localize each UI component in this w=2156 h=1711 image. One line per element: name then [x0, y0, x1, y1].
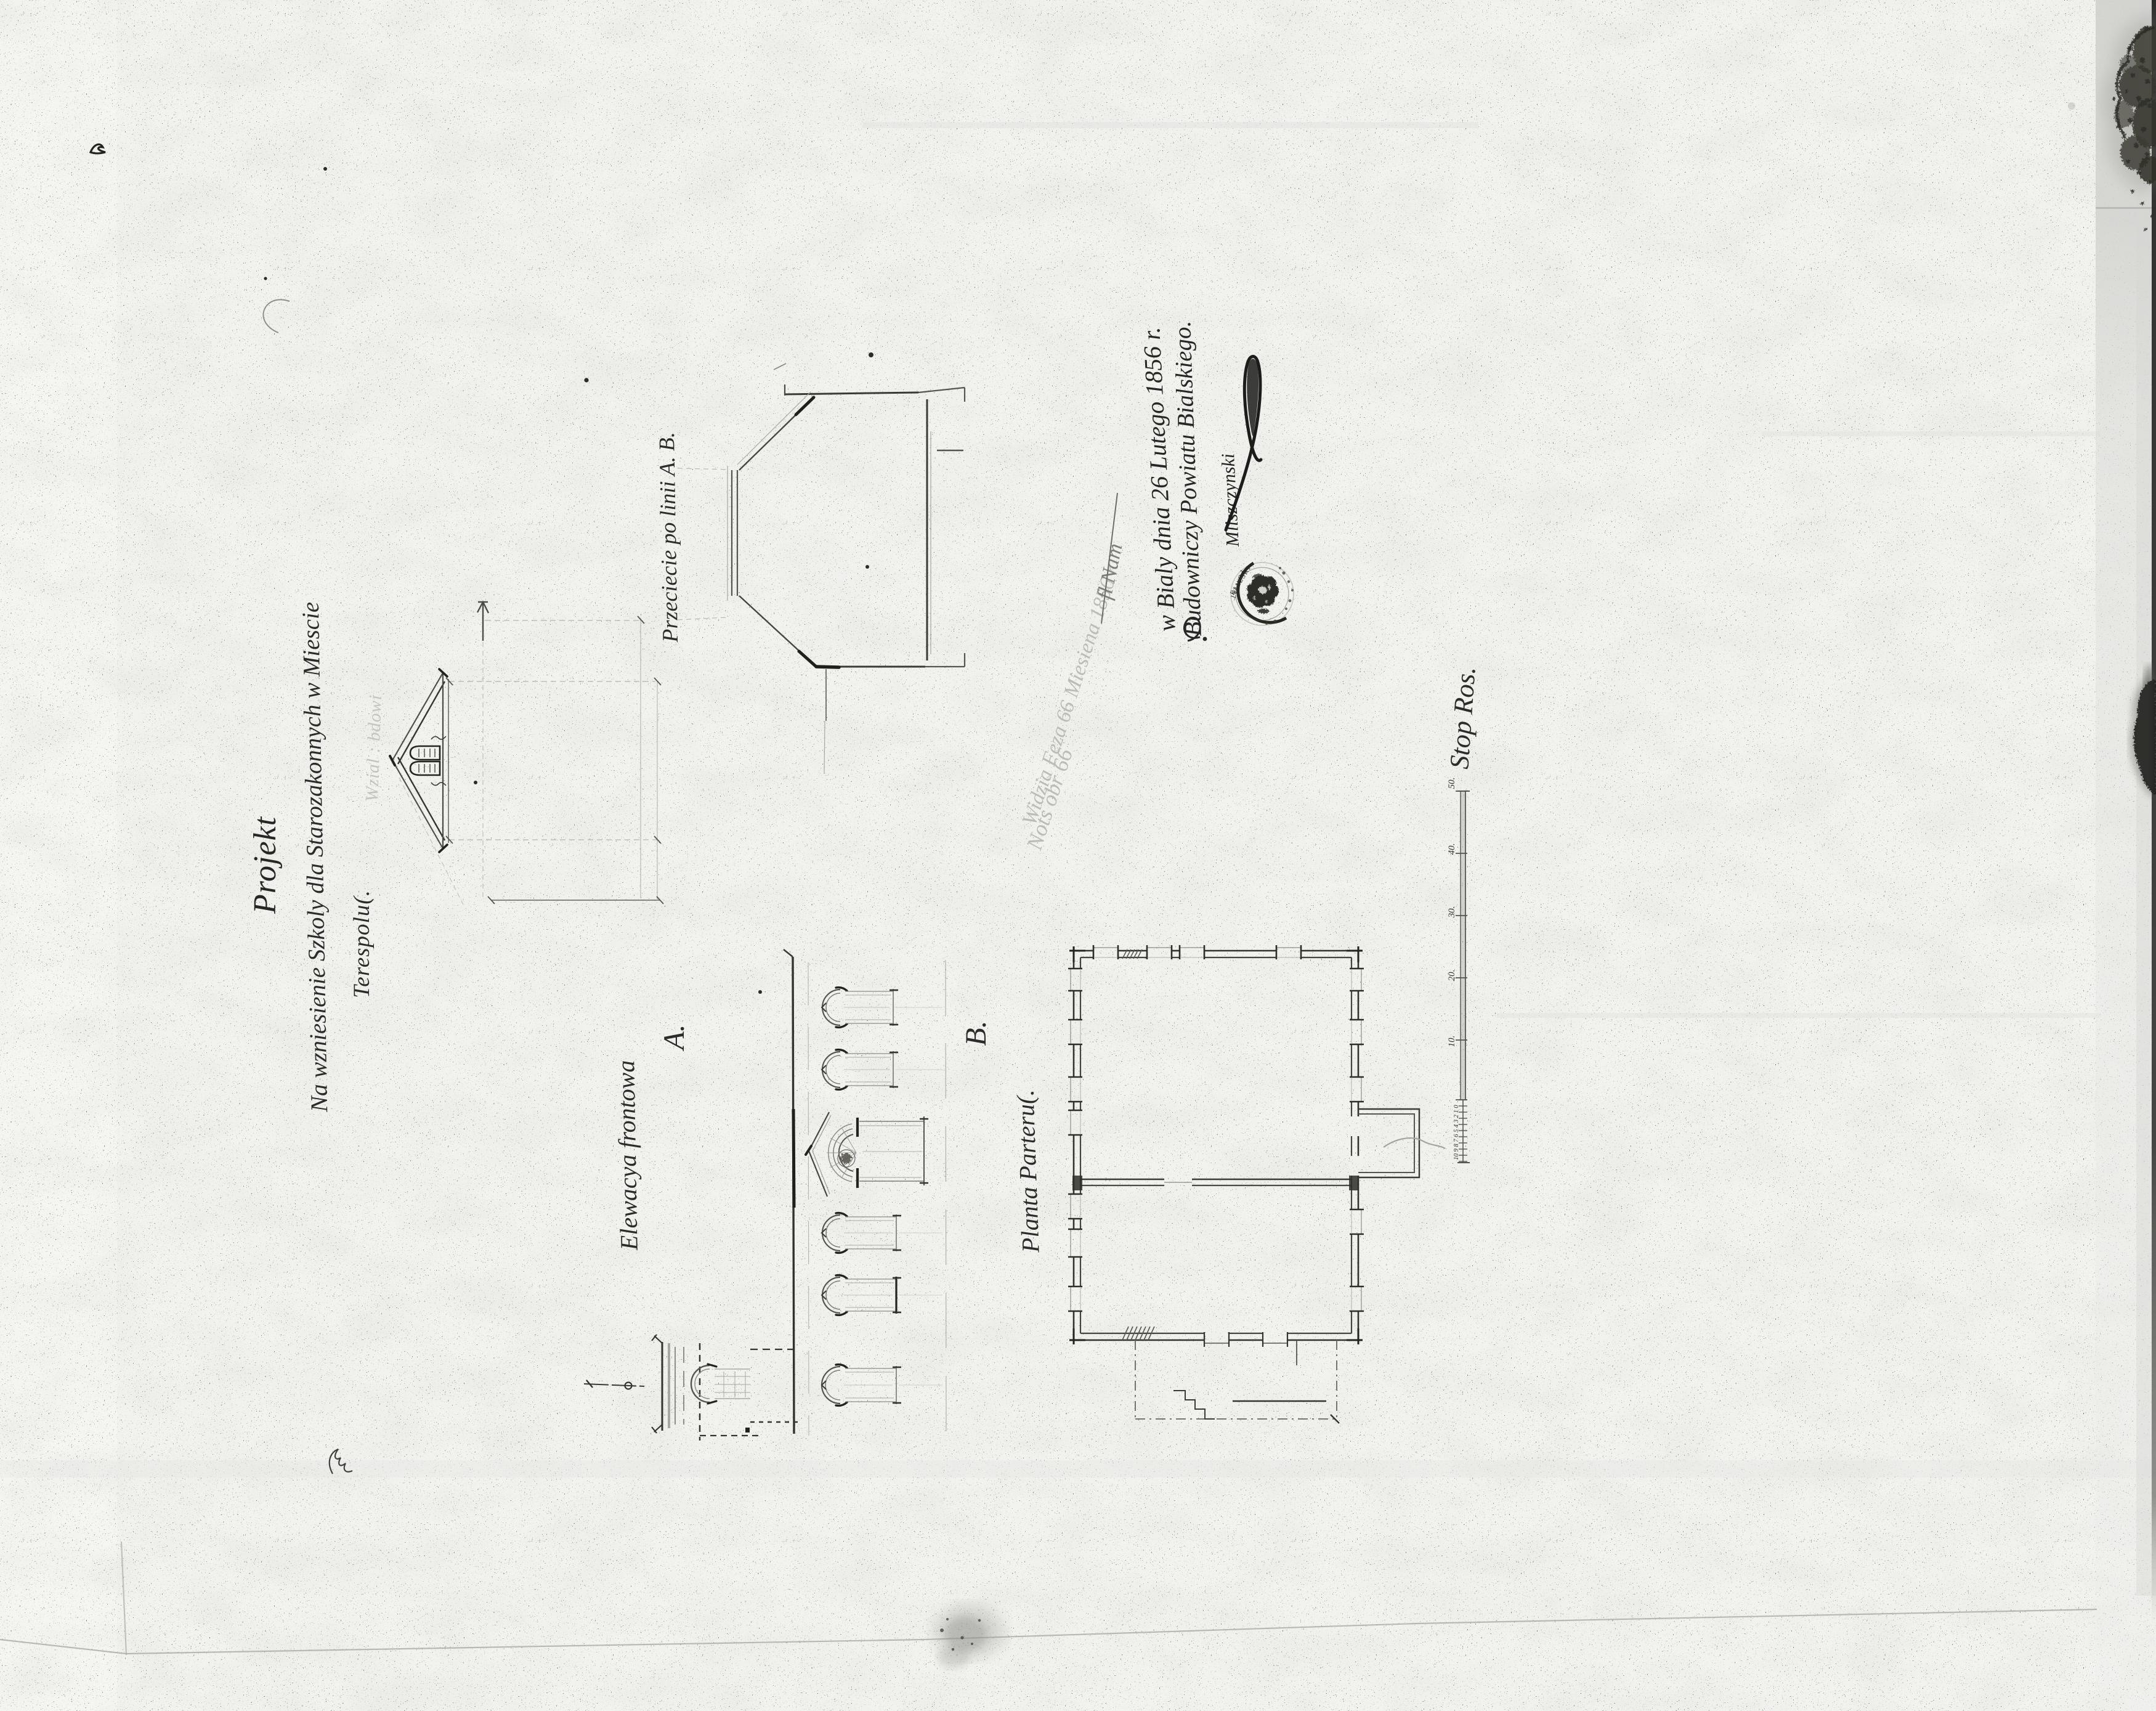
svg-text:50.: 50. [1447, 778, 1457, 789]
svg-text:20.: 20. [1447, 970, 1457, 981]
svg-text:A.: A. [658, 1024, 691, 1051]
svg-text:10.: 10. [1447, 1036, 1457, 1047]
svg-text:Terespolu(.: Terespolu(. [349, 890, 375, 998]
svg-text:Projekt: Projekt [248, 816, 283, 914]
svg-text:B.: B. [960, 1020, 992, 1046]
svg-text:10 9 8 7 6 5 4 3 2 1 0: 10 9 8 7 6 5 4 3 2 1 0 [1453, 1105, 1460, 1160]
svg-text:30.: 30. [1447, 906, 1457, 919]
svg-text:Przeciecie po linii A. B.: Przeciecie po linii A. B. [654, 432, 683, 643]
svg-text:Wzial : bdowi: Wzial : bdowi [362, 694, 386, 802]
svg-text:Planta Parteru(.: Planta Parteru(. [1011, 1089, 1044, 1254]
svg-text:40.: 40. [1447, 843, 1457, 855]
svg-text:Elewacya frontowa: Elewacya frontowa [612, 1060, 642, 1251]
